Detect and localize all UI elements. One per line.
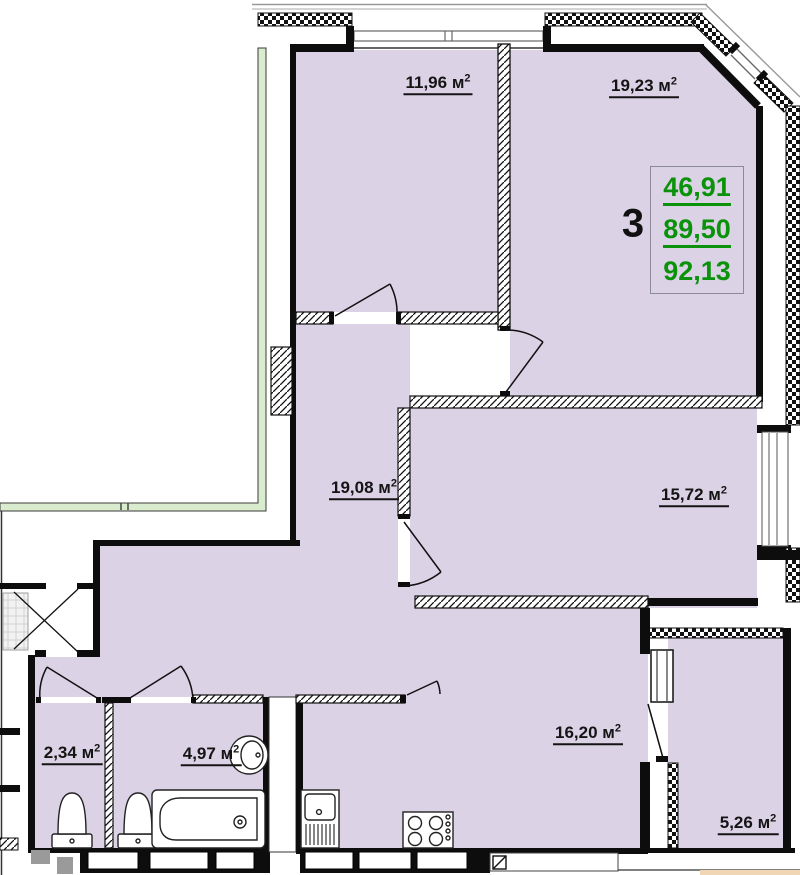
room-label-bedroom-1: 11,96 м2 — [403, 73, 472, 95]
floor-plan-drawing — [0, 0, 800, 875]
adjacent-unit-outline — [0, 48, 266, 511]
room-label-kitchen-living: 16,20 м2 — [553, 723, 623, 745]
living-area-value: 46,91 — [663, 173, 731, 206]
bathtub — [152, 790, 265, 848]
room-label-wc: 2,34 м2 — [42, 743, 103, 765]
room-label-balcony: 5,26 м2 — [718, 813, 779, 835]
total-area-value: 92,13 — [663, 257, 731, 287]
rooms-count: 3 — [622, 202, 644, 247]
room-label-hallway: 19,08 м2 — [329, 478, 399, 500]
apartment-area-value: 89,50 — [663, 215, 731, 248]
sink-kitchen — [301, 790, 339, 848]
area-summary-box: 46,91 89,50 92,13 — [650, 166, 744, 294]
room-label-bathroom: 4,97 м2 — [181, 744, 242, 766]
room-label-bedroom-2: 15,72 м2 — [659, 485, 729, 507]
room-label-living-room: 19,23 м2 — [609, 76, 679, 98]
stove — [403, 812, 453, 848]
floor-plan: 11,96 м2 19,23 м2 19,08 м2 15,72 м2 16,2… — [0, 0, 800, 875]
